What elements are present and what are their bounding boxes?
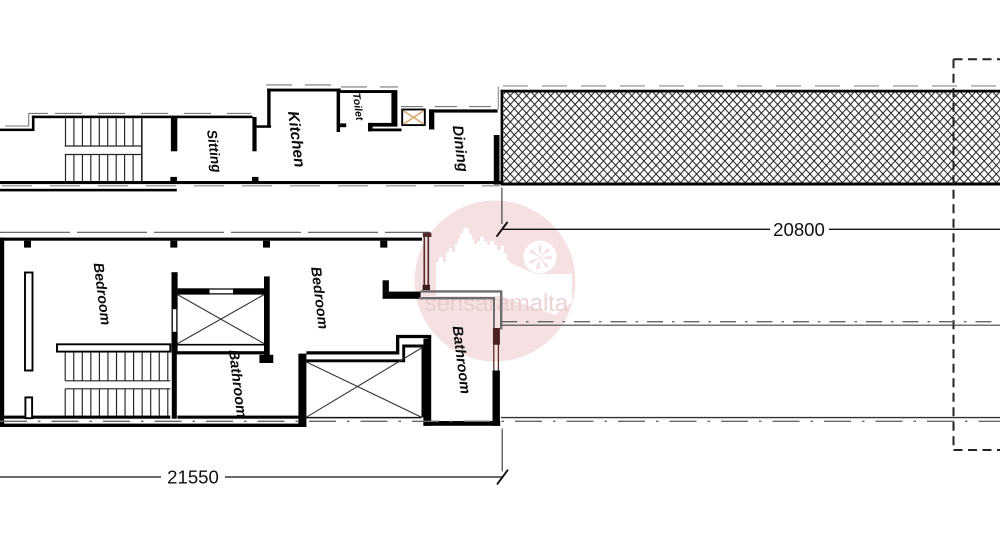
svg-text:20800: 20800 [773,219,825,240]
svg-text:sensaramalta: sensaramalta [425,290,569,317]
svg-text:21550: 21550 [167,466,219,487]
